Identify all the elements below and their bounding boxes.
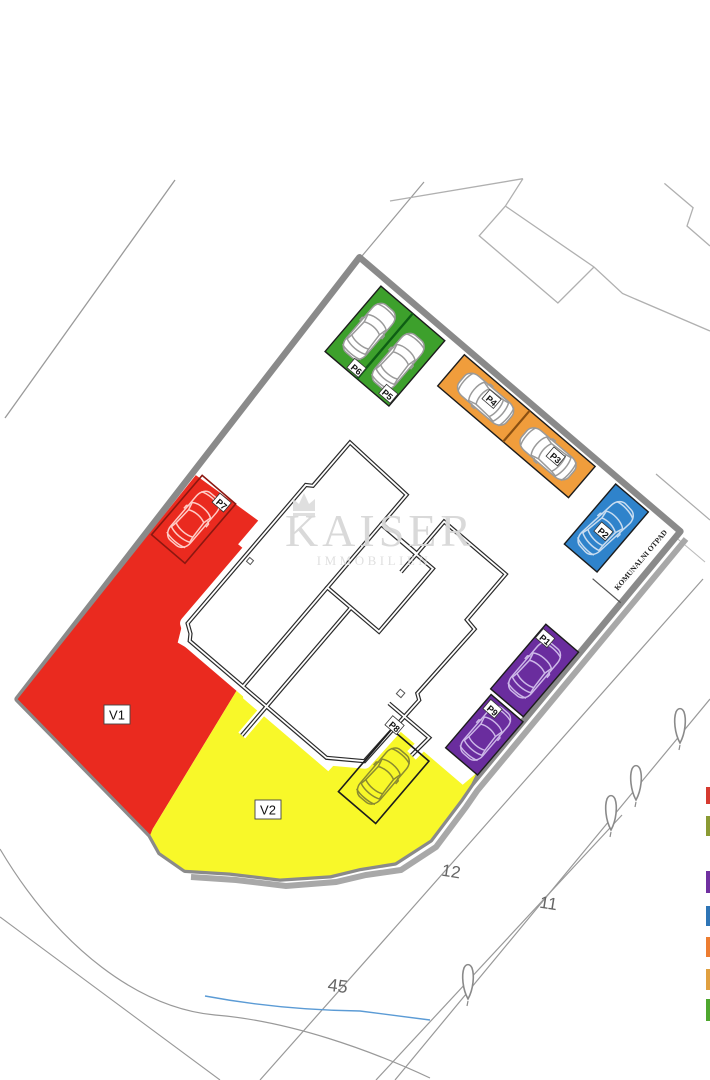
svg-text:KAISER: KAISER — [285, 505, 475, 556]
svg-text:V2: V2 — [260, 803, 276, 818]
svg-text:11: 11 — [538, 893, 558, 915]
svg-text:12: 12 — [440, 861, 462, 883]
svg-text:45: 45 — [327, 975, 349, 997]
svg-text:V1: V1 — [109, 708, 125, 723]
svg-text:IMMOBILIEN: IMMOBILIEN — [317, 553, 431, 568]
